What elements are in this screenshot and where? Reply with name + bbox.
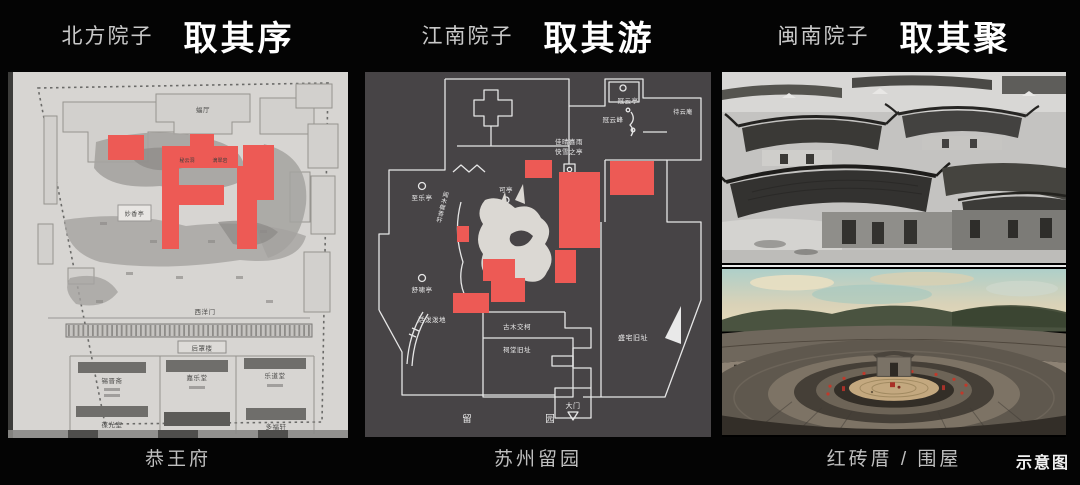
- center-figure: [890, 382, 895, 387]
- header-north-courtyard: 北方院子 取其序: [8, 0, 348, 70]
- gongwangfu-plan-image: 蝠厅 秘云洞 滴翠岩 妙香亭 西洋门 后罩楼 锡晋斋 葆光室 嘉乐堂 乐道堂 多…: [8, 72, 348, 438]
- map-label-yuan: 园: [545, 414, 555, 425]
- tulou-courtyard-photo: [722, 269, 1066, 435]
- liuyuan-plan-svg: 冠云亭 冠云峰 待云庵 佳晴喜雨 快雪之亭 可亭 至乐亭 闻木樨香轩 舒啸亭 活…: [365, 72, 711, 437]
- caption-hongzhuancuo-weiwu: 红砖厝 / 围屋: [722, 444, 1066, 472]
- map-label-liu: 留: [462, 413, 472, 425]
- map-label-jialetang: 嘉乐堂: [187, 373, 208, 382]
- photo-divider-line: [722, 265, 1066, 267]
- map-label-gumujiaoke: 古木交柯: [503, 322, 531, 331]
- map-label-jiaqingxiyu: 佳晴喜雨: [555, 137, 583, 146]
- minnan-roofs-photo: [722, 72, 1066, 263]
- map-label-damen: 大门: [566, 401, 581, 410]
- map-label-baoguangshi: 葆光室: [102, 420, 123, 429]
- header-jiangnan-courtyard: 江南院子 取其游: [365, 0, 711, 70]
- map-label-shuxiaoting: 舒啸亭: [412, 285, 433, 294]
- map-label-xijinzhai: 锡晋斋: [102, 376, 123, 385]
- header-subtitle-north: 北方院子: [62, 20, 154, 50]
- map-label-ledaotang: 乐道堂: [265, 371, 286, 380]
- map-label-houzhaolou: 后罩楼: [192, 344, 213, 353]
- tulou-rings: [722, 339, 1066, 435]
- map-label-keting: 可亭: [499, 185, 513, 194]
- map-label-dicuiyan: 滴翠岩: [212, 157, 227, 164]
- map-label-kuaixuezhiting: 快雪之亭: [555, 147, 583, 156]
- minnan-photos: [722, 72, 1066, 437]
- header-title-gather: 取其聚: [900, 11, 1011, 60]
- map-label-miaoxiangting: 妙香亭: [125, 210, 145, 218]
- map-label-futing: 蝠厅: [196, 106, 210, 114]
- caption-gongwangfu: 恭王府: [8, 444, 348, 472]
- photo-edge: [8, 72, 13, 438]
- map-label-zhileting: 至乐亭: [412, 193, 433, 202]
- map-label-miyundong: 秘云洞: [179, 157, 194, 164]
- liuyuan-plan-image: 冠云亭 冠云峰 待云庵 佳晴喜雨 快雪之亭 可亭 至乐亭 闻木樨香轩 舒啸亭 活…: [365, 72, 711, 437]
- map-label-xiyangmen: 西洋门: [195, 307, 216, 316]
- gongwangfu-plan-svg: 蝠厅 秘云洞 滴翠岩 妙香亭 西洋门 后罩楼 锡晋斋 葆光室 嘉乐堂 乐道堂 多…: [8, 72, 348, 438]
- map-label-huopopodi: 活泼泼地: [418, 315, 446, 324]
- caption-suzhou-liuyuan: 苏州留园: [365, 444, 711, 472]
- header-title-wander: 取其游: [544, 11, 655, 60]
- map-label-daiyunan: 待云庵: [673, 108, 693, 116]
- header-minnan-courtyard: 闽南院子 取其聚: [722, 0, 1066, 70]
- schematic-note: 示意图: [1016, 449, 1070, 473]
- map-label-duofuxuan: 多福轩: [266, 422, 287, 431]
- map-label-guanyunfeng: 冠云峰: [603, 115, 624, 124]
- header-subtitle-jiangnan: 江南院子: [422, 20, 514, 50]
- header-subtitle-minnan: 闽南院子: [778, 20, 870, 50]
- map-label-guanyunting: 冠云亭: [618, 96, 639, 105]
- map-label-shengzhaijiuzhi: 盛宅旧址: [618, 333, 648, 342]
- header-title-order: 取其序: [184, 11, 295, 60]
- far-roofs: [722, 72, 1066, 112]
- map-label-citangjiuzhi: 祠堂旧址: [503, 345, 531, 354]
